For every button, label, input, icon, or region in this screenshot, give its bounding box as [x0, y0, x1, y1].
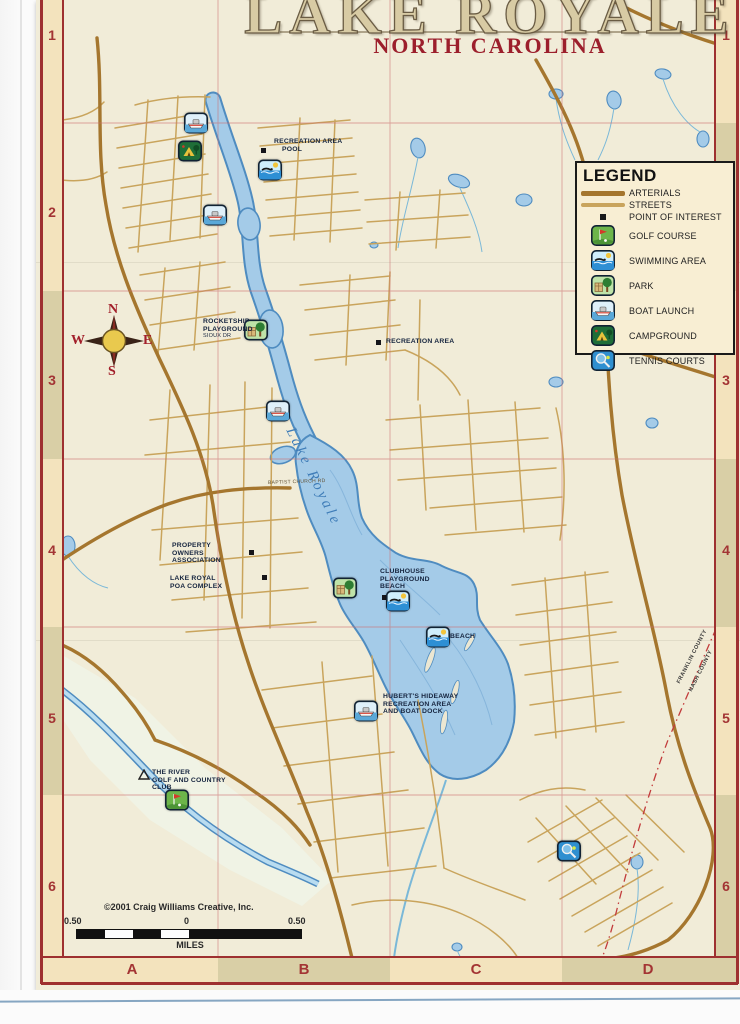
legend-item-tennis-courts: TENNIS COURTS: [577, 348, 733, 373]
legend-item-label: GOLF COURSE: [629, 231, 697, 241]
rocketship-playground-label: ROCKETSHIPPLAYGROUNDSIOUX DR: [203, 318, 253, 339]
point-of-interest-marker: [261, 148, 266, 153]
boat-launch-icon: [203, 205, 227, 226]
frame-outer-right: [736, 0, 739, 984]
recreation-area-label: RECREATION AREA: [386, 338, 454, 346]
frame-inner-right: [714, 0, 716, 958]
boat-launch-icon: [354, 701, 378, 722]
legend-item-label: CAMPGROUND: [629, 331, 697, 341]
property-owners-association-label: PROPERTYOWNERSASSOCIATION: [172, 542, 221, 565]
legend-item-label: SWIMMING AREA: [629, 256, 706, 266]
legend-item-label: PARK: [629, 281, 654, 291]
legend-box: LEGEND ARTERIALS STREETS POINT OF INTERE…: [575, 161, 735, 355]
legend-item-boat-launch: BOAT LAUNCH: [577, 298, 733, 323]
swimming-area-icon: [386, 591, 410, 612]
legend-item-label: POINT OF INTEREST: [629, 212, 722, 222]
arterial-line-swatch: [577, 191, 629, 196]
lake-royal-poa-complex-label: LAKE ROYALPOA COMPLEX: [170, 575, 222, 590]
grid-row-label-left: 5: [43, 710, 61, 726]
grid-row-label-left: 2: [43, 204, 61, 220]
legend-item-park: PARK: [577, 273, 733, 298]
swimming-area-icon: [591, 250, 615, 271]
point-of-interest-marker: [262, 575, 267, 580]
grid-row-label-right: 4: [717, 542, 735, 558]
boat-launch-icon: [591, 300, 615, 321]
compass-east-label: E: [143, 333, 152, 349]
legend-item-streets: STREETS: [577, 199, 733, 211]
grid-row-label-right: 3: [717, 372, 735, 388]
map-canvas: [0, 0, 740, 1024]
clubhouse-playground-beach-label: CLUBHOUSEPLAYGROUNDBEACH: [380, 568, 430, 591]
boat-launch-icon: [184, 113, 208, 134]
frame-outer-bottom: [41, 982, 738, 985]
tennis-courts-icon: [591, 350, 615, 371]
legend-item-golf-course: GOLF COURSE: [577, 223, 733, 248]
frame-outer-left: [40, 0, 43, 984]
compass-north-label: N: [108, 302, 118, 318]
frame-inner-bottom: [41, 956, 738, 958]
scale-label-left: 0.50: [64, 916, 82, 926]
grid-col-label: D: [633, 961, 663, 978]
park-icon: [591, 275, 615, 296]
tennis-courts-icon: [557, 841, 581, 862]
frame-inner-left: [62, 0, 64, 958]
legend-title: LEGEND: [583, 166, 733, 186]
point-of-interest-marker: [249, 550, 254, 555]
legend-item-label: STREETS: [629, 200, 672, 210]
poi-square-swatch: [577, 214, 629, 220]
golf-club-triangle-marker: [138, 769, 150, 780]
campground-icon: [178, 141, 202, 162]
compass-west-label: W: [71, 333, 85, 349]
legend-item-arterials: ARTERIALS: [577, 187, 733, 199]
scale-bar: [76, 929, 302, 939]
legend-item-label: ARTERIALS: [629, 188, 681, 198]
river-golf-country-club-label: THE RIVERGOLF AND COUNTRYCLUB: [152, 769, 226, 792]
grid-row-label-left: 6: [43, 878, 61, 894]
recreation-area-pool-label: RECREATION AREAPOOL: [274, 138, 342, 153]
legend-item-point-of-interest: POINT OF INTEREST: [577, 211, 733, 223]
legend-item-label: TENNIS COURTS: [629, 356, 705, 366]
grid-row-label-left: 4: [43, 542, 61, 558]
swimming-area-icon: [426, 627, 450, 648]
legend-item-label: BOAT LAUNCH: [629, 306, 694, 316]
grid-row-label-right: 6: [717, 878, 735, 894]
map-subtitle: NORTH CAROLINA: [240, 33, 740, 59]
legend-item-swimming-area: SWIMMING AREA: [577, 248, 733, 273]
grid-row-label-left: 3: [43, 372, 61, 388]
scale-label-zero: 0: [184, 916, 189, 926]
left-grid-band: [41, 0, 63, 984]
park-icon: [333, 578, 357, 599]
campground-icon: [591, 325, 615, 346]
street-line-swatch: [577, 203, 629, 207]
copyright-text: ©2001 Craig Williams Creative, Inc.: [104, 902, 254, 912]
point-of-interest-marker: [376, 340, 381, 345]
grid-row-label-left: 1: [43, 27, 61, 43]
spillway-stream: [394, 780, 446, 958]
grid-col-label: B: [289, 961, 319, 978]
scale-label-right: 0.50: [288, 916, 306, 926]
scale-unit-label: MILES: [150, 940, 230, 950]
beach-label: BEACH: [450, 633, 475, 641]
grid-row-label-right: 5: [717, 710, 735, 726]
boat-launch-icon: [266, 401, 290, 422]
swimming-area-icon: [258, 160, 282, 181]
golf-course-icon: [591, 225, 615, 246]
golf-course-icon: [165, 790, 189, 811]
scanned-map-page: 1 2 3 4 5 6 1 2 3 4 5 6 A B C D LAKE ROY…: [0, 0, 740, 1024]
compass-south-label: S: [108, 364, 116, 380]
huberts-hideaway-label: HUBERT'S HIDEAWAYRECREATION AREAAND BOAT…: [383, 693, 458, 716]
grid-col-label: A: [117, 961, 147, 978]
grid-col-label: C: [461, 961, 491, 978]
legend-item-campground: CAMPGROUND: [577, 323, 733, 348]
